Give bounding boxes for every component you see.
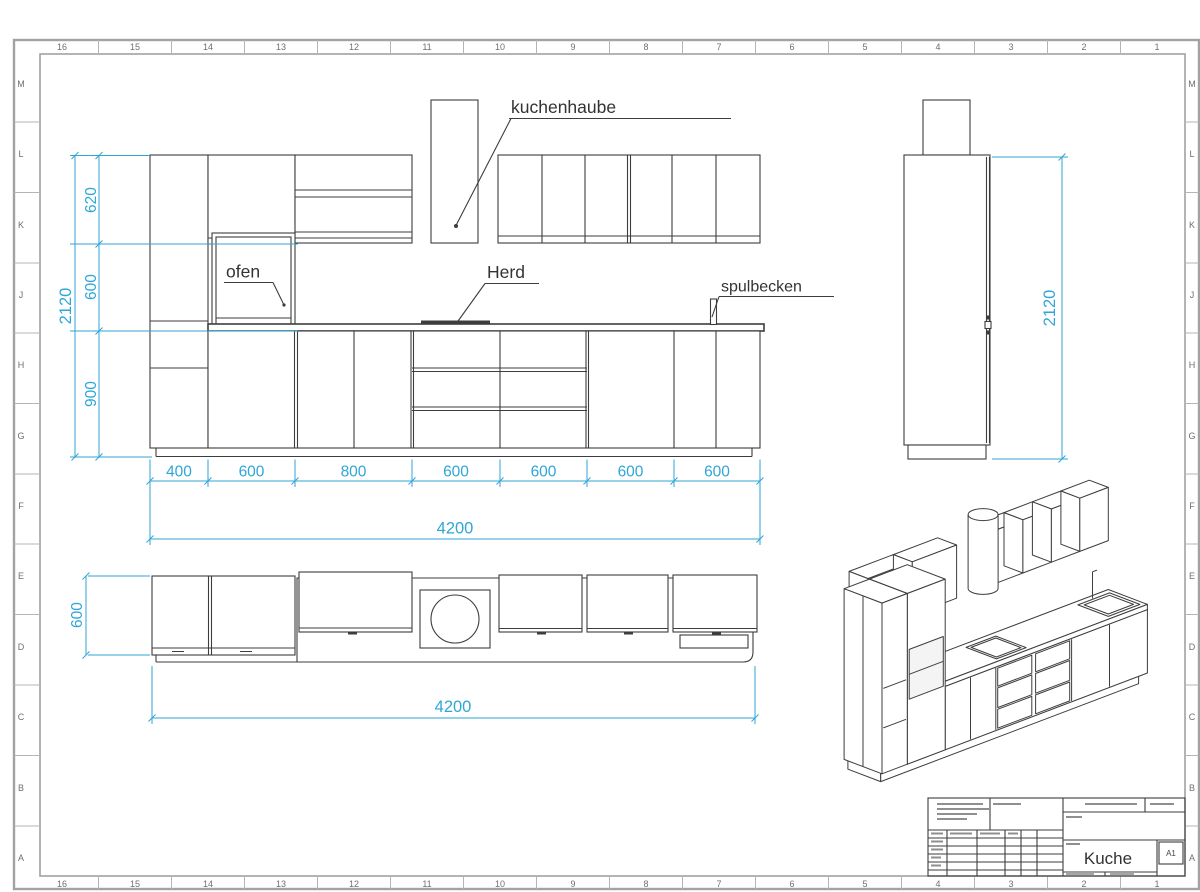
grid-row-label: K bbox=[18, 220, 24, 230]
grid-column-label: 12 bbox=[349, 879, 359, 889]
cooktop bbox=[421, 321, 490, 325]
grid-column-label: 5 bbox=[862, 42, 867, 52]
dim-2120: 2120 bbox=[57, 288, 75, 325]
dim-600: 600 bbox=[531, 464, 557, 481]
dim-600: 600 bbox=[443, 464, 469, 481]
grid-row-labels-left: M L K J H G F E D C B A bbox=[17, 79, 25, 863]
grid-column-label: 8 bbox=[643, 879, 648, 889]
door-handle bbox=[985, 322, 991, 329]
grid-column-label: 16 bbox=[57, 42, 67, 52]
countertop bbox=[208, 324, 764, 331]
grid-column-labels-bottom: 16 15 14 13 12 11 10 9 8 7 6 5 4 3 2 1 bbox=[57, 879, 1160, 889]
grid-row-label: A bbox=[18, 853, 24, 863]
drawing-sheet: 16 15 14 13 12 11 10 9 8 7 6 5 4 3 2 1 1… bbox=[0, 0, 1200, 892]
grid-column-label: 2 bbox=[1081, 42, 1086, 52]
dim-4200: 4200 bbox=[437, 520, 474, 538]
grid-column-label: 10 bbox=[495, 42, 505, 52]
dim-900: 900 bbox=[83, 381, 100, 407]
dim-600: 600 bbox=[239, 464, 265, 481]
grid-row-label: E bbox=[1189, 571, 1195, 581]
dim-620: 620 bbox=[83, 187, 100, 213]
grid-row-label: D bbox=[1189, 642, 1196, 652]
grid-row-labels-right: M L K J H G F E D C B A bbox=[1188, 79, 1196, 863]
grid-column-label: 13 bbox=[276, 42, 286, 52]
grid-column-label: 1 bbox=[1154, 42, 1159, 52]
grid-column-label: 4 bbox=[935, 879, 940, 889]
grid-column-label: 13 bbox=[276, 879, 286, 889]
tall-units-top bbox=[152, 576, 295, 655]
dim-600: 600 bbox=[83, 274, 100, 300]
grid-column-label: 14 bbox=[203, 879, 213, 889]
grid-column-label: 5 bbox=[862, 879, 867, 889]
oven-label: ofen bbox=[226, 262, 260, 282]
grid-column-labels-top: 16 15 14 13 12 11 10 9 8 7 6 5 4 3 2 1 bbox=[57, 42, 1160, 52]
grid-column-label: 11 bbox=[422, 879, 431, 889]
side-elevation-view: 2120 bbox=[904, 100, 1068, 463]
grid-row-label: J bbox=[1190, 290, 1195, 300]
grid-column-label: 6 bbox=[789, 879, 794, 889]
grid-row-label: G bbox=[17, 431, 24, 441]
dim-600: 600 bbox=[704, 464, 730, 481]
dim-4200: 4200 bbox=[435, 698, 472, 716]
grid-row-label: F bbox=[1189, 501, 1195, 511]
dim-400: 400 bbox=[166, 464, 192, 481]
grid-row-label: K bbox=[1189, 220, 1195, 230]
grid-row-label: M bbox=[17, 79, 25, 89]
grid-column-label: 9 bbox=[570, 42, 575, 52]
grid-column-label: 10 bbox=[495, 879, 505, 889]
grid-column-label: 15 bbox=[130, 42, 140, 52]
sink-label: spulbecken bbox=[721, 279, 802, 296]
sheet-format: A1 bbox=[1166, 849, 1176, 858]
tall-cabinet bbox=[150, 155, 208, 448]
wall-cabinet bbox=[208, 155, 295, 244]
grid-row-label: E bbox=[18, 571, 24, 581]
base-cabinet-run bbox=[208, 331, 760, 448]
hood-label: kuchenhaube bbox=[511, 97, 616, 117]
grid-column-label: 1 bbox=[1154, 879, 1159, 889]
wall-cabinet-top bbox=[499, 575, 582, 632]
grid-column-label: 7 bbox=[716, 42, 721, 52]
grid-column-label: 8 bbox=[643, 42, 648, 52]
grid-column-label: 11 bbox=[422, 42, 431, 52]
wall-cabinet-top bbox=[299, 572, 412, 632]
grid-column-label: 3 bbox=[1008, 42, 1013, 52]
cad-drawing: 16 15 14 13 12 11 10 9 8 7 6 5 4 3 2 1 1… bbox=[0, 0, 1200, 892]
dim-600: 600 bbox=[69, 602, 86, 628]
wall-cabinet-group bbox=[498, 155, 760, 243]
grid-row-label: L bbox=[1189, 149, 1194, 159]
dim-600: 600 bbox=[618, 464, 644, 481]
grid-column-label: 3 bbox=[1008, 879, 1013, 889]
dim-2120: 2120 bbox=[1041, 290, 1059, 327]
grid-row-label: H bbox=[18, 360, 25, 370]
grid-row-label: L bbox=[18, 149, 23, 159]
oven-box bbox=[212, 233, 295, 330]
grid-row-label: C bbox=[18, 712, 25, 722]
cabinet-side bbox=[904, 155, 990, 445]
grid-row-label: B bbox=[18, 783, 24, 793]
sink-top bbox=[680, 635, 748, 648]
wall-cabinet bbox=[295, 155, 412, 243]
grid-column-label: 2 bbox=[1081, 879, 1086, 889]
grid-row-label: B bbox=[1189, 783, 1195, 793]
grid-row-label: M bbox=[1188, 79, 1196, 89]
dim-800: 800 bbox=[341, 464, 367, 481]
grid-column-label: 15 bbox=[130, 879, 140, 889]
grid-row-label: C bbox=[1189, 712, 1196, 722]
grid-column-label: 16 bbox=[57, 879, 67, 889]
grid-row-label: J bbox=[19, 290, 24, 300]
grid-row-label: G bbox=[1188, 431, 1195, 441]
grid-column-label: 6 bbox=[789, 42, 794, 52]
grid-row-label: D bbox=[18, 642, 25, 652]
grid-column-label: 12 bbox=[349, 42, 359, 52]
grid-row-label: H bbox=[1189, 360, 1196, 370]
plinth bbox=[156, 448, 752, 457]
grid-column-label: 14 bbox=[203, 42, 213, 52]
drawing-title: Kuche bbox=[1084, 849, 1132, 868]
plan-view: 600 4200 bbox=[69, 572, 759, 724]
wall-cabinet-top bbox=[587, 575, 668, 632]
grid-row-label: A bbox=[1189, 853, 1195, 863]
stove-label: Herd bbox=[487, 262, 525, 282]
grid-column-label: 7 bbox=[716, 879, 721, 889]
plinth bbox=[908, 445, 986, 459]
grid-row-label: F bbox=[18, 501, 24, 511]
grid-column-label: 4 bbox=[935, 42, 940, 52]
title-block: Kuche A1 bbox=[928, 798, 1185, 876]
grid-column-label: 9 bbox=[570, 879, 575, 889]
hood-cabinet bbox=[431, 100, 478, 243]
wall-cabinet-top bbox=[673, 575, 757, 632]
isometric-view bbox=[844, 480, 1147, 781]
chimney bbox=[923, 100, 970, 155]
